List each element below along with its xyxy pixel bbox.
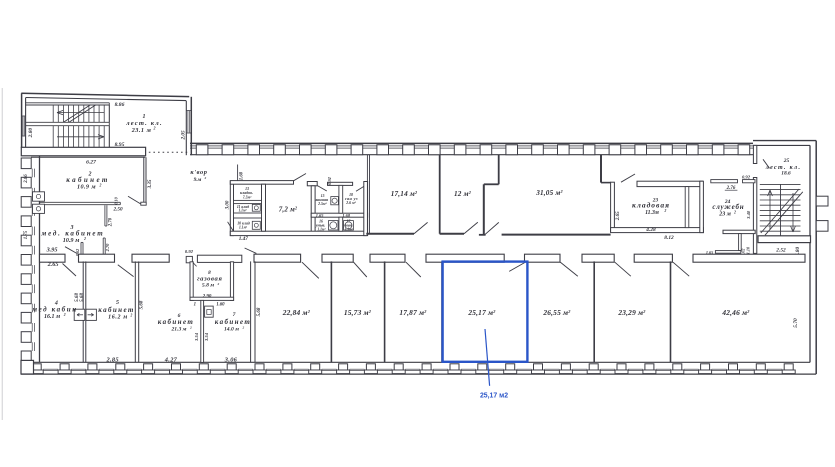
svg-text:кабинет: кабинет [158,318,194,326]
svg-text:2: 2 [664,209,667,213]
svg-text:2.05: 2.05 [180,130,186,140]
svg-text:5.68: 5.68 [257,307,262,316]
svg-text:2: 2 [130,314,133,318]
svg-text:5.70: 5.70 [793,318,799,328]
svg-text:мед кабин: мед кабин [31,306,78,314]
svg-text:16.2 м: 16.2 м [108,315,128,321]
svg-text:4.28: 4.28 [645,227,656,233]
svg-text:2: 2 [153,125,156,130]
svg-text:2: 2 [217,282,220,286]
svg-text:31,05 м2: 31,05 м2 [535,189,563,197]
svg-text:служебн: служебн [712,203,744,211]
svg-text:1.68: 1.68 [342,213,350,218]
svg-text:кладов.: кладов. [240,190,253,195]
svg-text:3.35: 3.35 [148,179,153,189]
svg-text:2: 2 [83,237,86,241]
svg-text:2: 2 [204,176,207,180]
svg-text:25,17 м2: 25,17 м2 [467,308,496,317]
svg-text:15,73 м2: 15,73 м2 [344,308,372,317]
svg-text:2.6 м²: 2.6 м² [345,201,356,205]
svg-text:1.60: 1.60 [240,171,245,180]
svg-text:1.75: 1.75 [24,230,29,239]
svg-text:18.6: 18.6 [781,171,791,177]
svg-text:10.9 м: 10.9 м [63,237,80,244]
svg-text:3.54: 3.54 [194,332,199,342]
svg-text:8.12: 8.12 [664,235,674,241]
svg-text:3.95: 3.95 [46,247,58,254]
svg-text:2: 2 [63,313,66,317]
svg-text:2.85: 2.85 [106,356,120,363]
svg-text:2: 2 [242,325,245,329]
svg-text:лест. кл.: лест. кл. [125,120,163,127]
svg-text:2.70: 2.70 [109,217,114,227]
svg-text:42,46 м2: 42,46 м2 [721,308,750,317]
svg-text:2.80: 2.80 [28,128,34,139]
svg-text:3.54: 3.54 [204,332,209,342]
svg-text:2: 2 [99,183,102,187]
svg-text:17,87 м2: 17,87 м2 [399,308,427,317]
svg-text:2.65: 2.65 [47,261,59,268]
svg-text:23,29 м2: 23,29 м2 [617,308,646,317]
svg-text:22,84 м2: 22,84 м2 [282,308,311,317]
svg-text:3.40: 3.40 [746,210,751,220]
svg-text:23.1 м: 23.1 м [131,127,152,134]
svg-text:кабинет: кабинет [98,306,134,314]
svg-text:1.1м²: 1.1м² [239,226,248,230]
svg-text:2.50: 2.50 [112,207,122,213]
svg-text:1.47: 1.47 [239,236,248,242]
svg-text:5.68: 5.68 [140,300,145,309]
svg-text:1.60: 1.60 [216,303,225,308]
svg-text:2.52: 2.52 [775,247,786,253]
svg-text:25: 25 [783,158,790,164]
svg-text:7,2 м2: 7,2 м2 [279,205,298,213]
svg-text:7.3м²: 7.3м² [243,196,252,200]
svg-text:11.3м: 11.3м [645,210,659,216]
svg-text:16.1 м: 16.1 м [44,314,60,320]
svg-text:2.5м²: 2.5м² [317,202,327,206]
svg-text:5.8 м: 5.8 м [202,283,214,289]
svg-text:0.92: 0.92 [185,249,194,254]
svg-text:1.65: 1.65 [316,213,324,218]
svg-text:кабинет: кабинет [215,318,251,326]
svg-text:12 м2: 12 м2 [454,190,471,198]
svg-text:17,14 м2: 17,14 м2 [391,190,418,198]
svg-text:2.66: 2.66 [24,174,29,184]
svg-text:23 м: 23 м [718,212,731,218]
svg-text:2.90: 2.90 [202,294,212,299]
svg-text:3.00: 3.00 [225,200,230,210]
svg-text:4.27: 4.27 [164,356,178,363]
svg-text:21.3 м: 21.3 м [170,326,186,332]
svg-text:1.1м²: 1.1м² [317,227,326,231]
svg-text:8.95: 8.95 [115,142,125,148]
svg-text:1.10: 1.10 [746,246,751,254]
svg-text:26,55 м2: 26,55 м2 [542,308,571,317]
svg-text:6.27: 6.27 [86,159,96,165]
svg-text:0.92: 0.92 [742,174,751,179]
svg-text:0.92: 0.92 [327,176,332,184]
svg-text:3.06: 3.06 [224,356,238,363]
svg-text:8.86: 8.86 [115,102,125,108]
svg-text:2.65: 2.65 [616,211,621,221]
svg-text:0.10: 0.10 [114,196,119,204]
svg-text:к'вор: к'вор [190,169,207,176]
svg-text:5.68: 5.68 [80,293,85,302]
svg-text:25,17 м2: 25,17 м2 [480,393,508,400]
svg-text:1: 1 [194,303,196,308]
svg-text:2: 2 [189,325,192,329]
svg-text:14.0 м: 14.0 м [224,326,239,332]
svg-text:9.м: 9.м [194,177,202,183]
svg-text:2.70: 2.70 [105,243,110,252]
svg-text:1.1м²: 1.1м² [238,209,247,213]
svg-text:2: 2 [733,210,736,214]
svg-text:10.9 м: 10.9 м [77,184,96,191]
svg-text:1.1м²: 1.1м² [345,227,354,231]
